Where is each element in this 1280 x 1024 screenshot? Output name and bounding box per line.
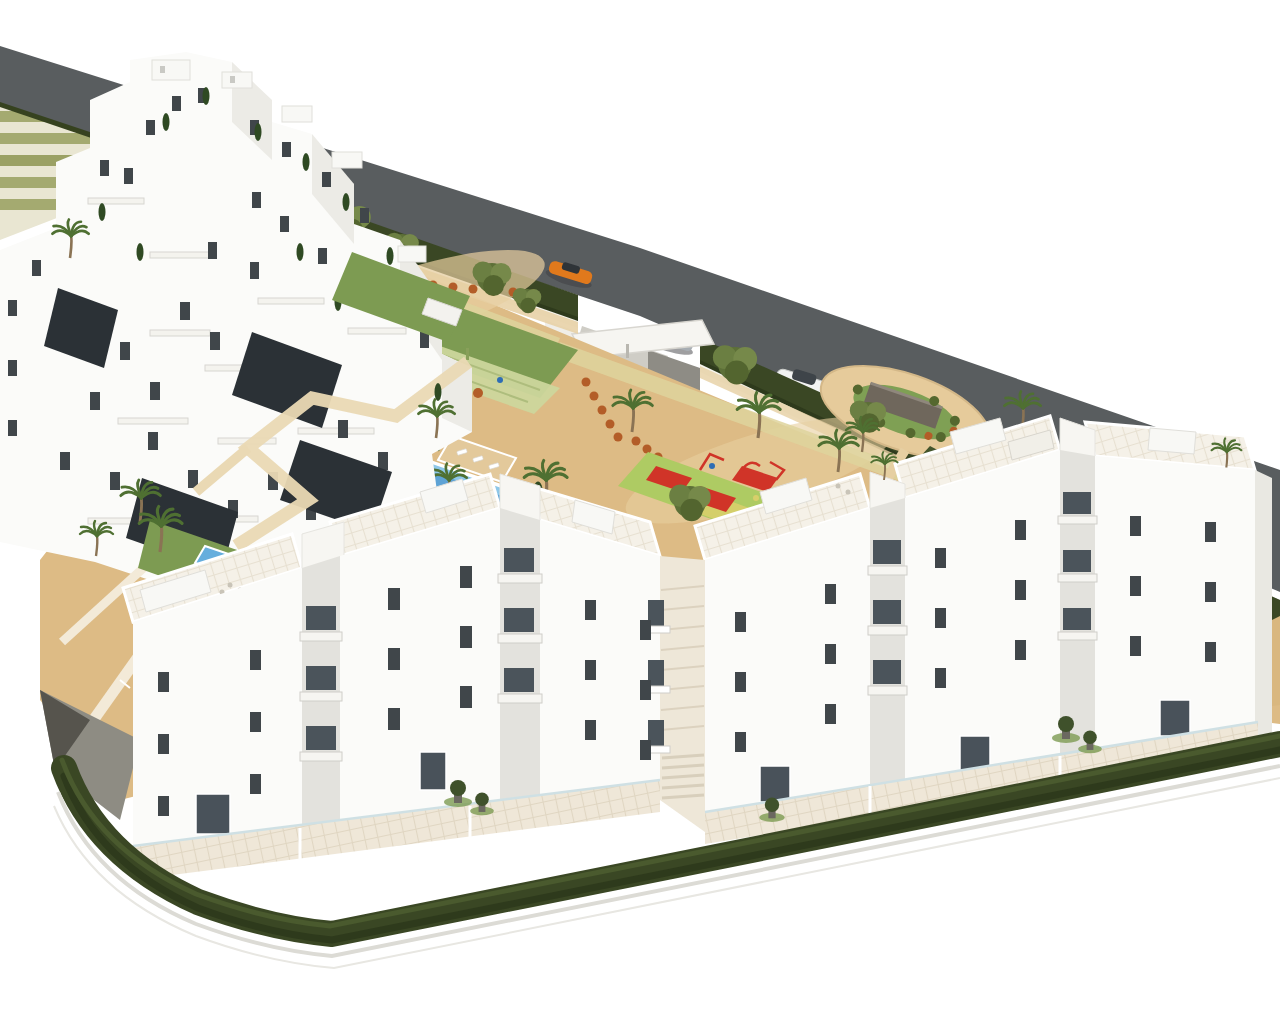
right-edge-ground — [1272, 616, 1280, 706]
building-block — [540, 520, 660, 818]
render-canvas — [0, 0, 1280, 1024]
render-stage — [0, 0, 1280, 1024]
building-right-face — [1255, 470, 1272, 742]
